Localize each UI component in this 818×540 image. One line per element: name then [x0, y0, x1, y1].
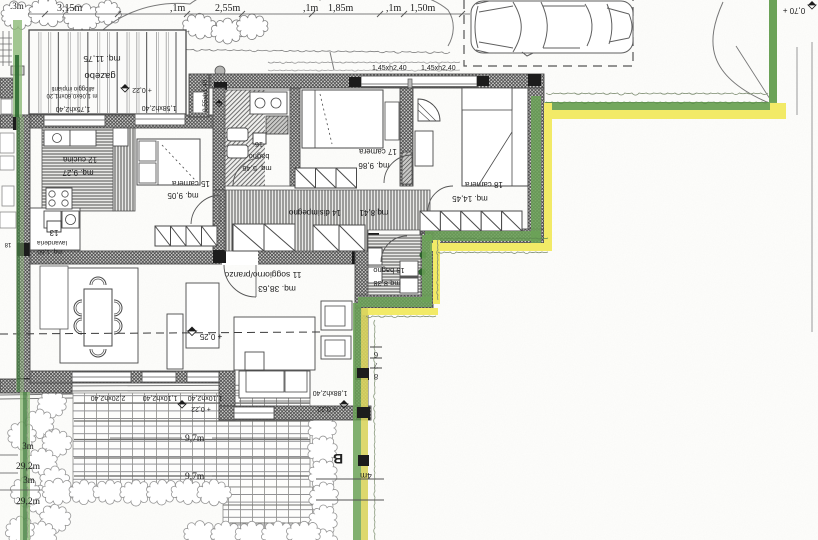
svg-text:1,85m: 1,85m — [328, 3, 354, 14]
svg-text:12 cucina: 12 cucina — [62, 155, 97, 164]
svg-text:1,10xh2,40: 1,10xh2,40 — [188, 394, 223, 401]
svg-text:3m: 3m — [23, 475, 35, 485]
svg-text:15 camera: 15 camera — [172, 179, 210, 188]
svg-text:+ 0,22: + 0,22 — [132, 86, 152, 93]
svg-text:29,2m: 29,2m — [16, 497, 41, 507]
svg-text:1,10xh2,40: 1,10xh2,40 — [143, 394, 178, 401]
svg-text:mq. 11,75: mq. 11,75 — [83, 54, 120, 64]
svg-text:16: 16 — [255, 140, 263, 149]
svg-text:1,88xh2,40: 1,88xh2,40 — [313, 389, 348, 396]
svg-text:0,55xh1,40: 0,55xh1,40 — [202, 79, 209, 112]
svg-text:mq. 1,60: mq. 1,60 — [37, 248, 63, 255]
svg-text:1,45xh2,40: 1,45xh2,40 — [421, 65, 456, 72]
svg-text:mq. 9,86: mq. 9,86 — [358, 161, 390, 170]
svg-text:+ 0,22: + 0,22 — [191, 405, 211, 412]
svg-text:mq. 9,05: mq. 9,05 — [167, 191, 199, 200]
svg-text:3m: 3m — [22, 441, 34, 451]
svg-text:mq. 9,27: mq. 9,27 — [62, 168, 94, 177]
svg-text:9,7m: 9,7m — [185, 434, 205, 444]
svg-text:.3m: .3m — [10, 1, 24, 11]
svg-text:m 1,06x0,60xh1,20: m 1,06x0,60xh1,20 — [46, 92, 98, 98]
svg-text:0,70 +: 0,70 + — [782, 6, 805, 15]
svg-text:2,55m: 2,55m — [215, 3, 241, 14]
svg-text:,1m: ,1m — [303, 3, 319, 14]
svg-text:+ 0,22: + 0,22 — [317, 405, 337, 412]
svg-text:gazebo: gazebo — [84, 70, 115, 81]
svg-text:1,75xh2,40: 1,75xh2,40 — [56, 105, 91, 112]
svg-text:mq. 5,46: mq. 5,46 — [242, 164, 271, 173]
svg-text:4m: 4m — [360, 471, 372, 481]
svg-text:3,15m: 3,15m — [57, 3, 83, 14]
svg-text:lavanderia: lavanderia — [37, 239, 67, 246]
svg-text:6: 6 — [374, 350, 378, 360]
svg-text:13: 13 — [49, 228, 58, 237]
svg-text:B: B — [333, 451, 343, 467]
svg-text:mq.8,41: mq.8,41 — [359, 208, 388, 217]
svg-text:1,50m: 1,50m — [410, 3, 436, 14]
svg-text:+ 0,25: + 0,25 — [199, 332, 222, 341]
svg-text:7: 7 — [374, 361, 378, 371]
svg-text:18 camera: 18 camera — [465, 180, 503, 189]
svg-text:2,20xh2,40: 2,20xh2,40 — [91, 394, 126, 401]
svg-text:29,2m: 29,2m — [16, 462, 41, 472]
svg-text:1,45xh2,40: 1,45xh2,40 — [372, 65, 407, 72]
svg-text:19 bagno: 19 bagno — [373, 266, 404, 275]
svg-text:9,7m: 9,7m — [185, 472, 205, 482]
svg-text:1,58xh2,40: 1,58xh2,40 — [142, 104, 177, 111]
svg-text:14 disimpegno: 14 disimpegno — [288, 208, 341, 217]
svg-text:mq. 14,45: mq. 14,45 — [452, 194, 488, 203]
svg-text:18: 18 — [4, 241, 11, 247]
svg-text:8: 8 — [374, 372, 378, 382]
svg-text:alloggio impianti: alloggio impianti — [51, 85, 94, 91]
svg-text:,1m: ,1m — [386, 3, 402, 14]
svg-text:mq.8,38: mq.8,38 — [373, 279, 400, 288]
svg-text:,1m: ,1m — [170, 3, 186, 14]
svg-text:17 camera: 17 camera — [359, 147, 397, 156]
svg-text:mq. 38,63: mq. 38,63 — [258, 284, 296, 294]
svg-text:11 soggiorno/pranzo: 11 soggiorno/pranzo — [224, 270, 301, 280]
